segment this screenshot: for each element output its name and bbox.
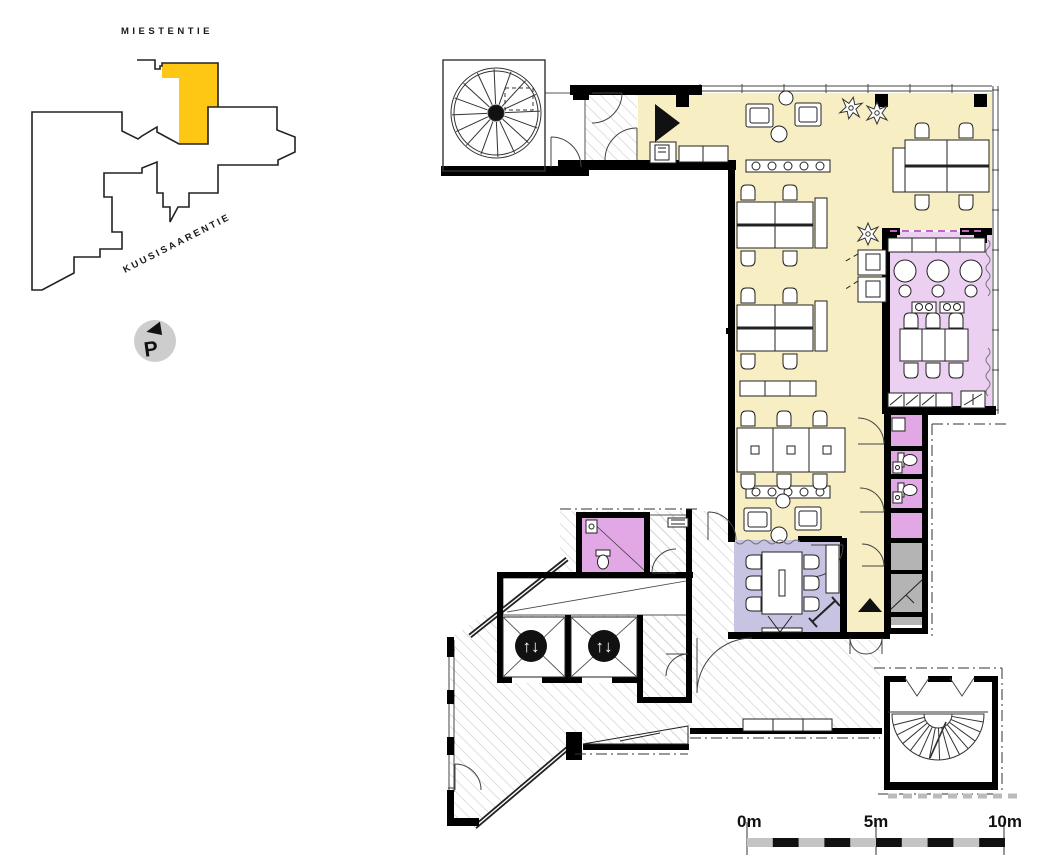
street-label-kuusisaarentie: KUUSISAARENTIE: [121, 212, 232, 276]
spiral-stair-bottom-right: [888, 712, 988, 760]
parking-icon: P: [134, 320, 176, 362]
floorplan-page: MIESTENTIE KUUSISAARENTIE P: [0, 0, 1061, 867]
scale-label-0m: 0m: [737, 812, 762, 831]
svg-text:↑↓: ↑↓: [596, 637, 613, 656]
scale-label-10m: 10m: [988, 812, 1022, 831]
street-label-miestentie: MIESTENTIE: [121, 26, 213, 37]
scale-bar: 0m 5m 10m: [737, 812, 1022, 855]
floorplan-canvas: MIESTENTIE KUUSISAARENTIE P: [0, 0, 1061, 867]
spiral-stair-top-left: [443, 60, 545, 171]
elevator-updown-icon: ↑↓: [515, 630, 547, 662]
lift-lobby-side-hatch: [643, 615, 690, 700]
main-floor-plan: ↑↓ ↑↓: [441, 60, 1022, 827]
site-key-plan: MIESTENTIE KUUSISAARENTIE P: [32, 26, 295, 362]
elevator-updown-icon: ↑↓: [588, 630, 620, 662]
scale-label-5m: 5m: [864, 812, 889, 831]
svg-text:↑↓: ↑↓: [523, 637, 540, 656]
site-highlighted-wing: [162, 63, 218, 144]
entry-vestibule-hatch: [585, 93, 637, 162]
